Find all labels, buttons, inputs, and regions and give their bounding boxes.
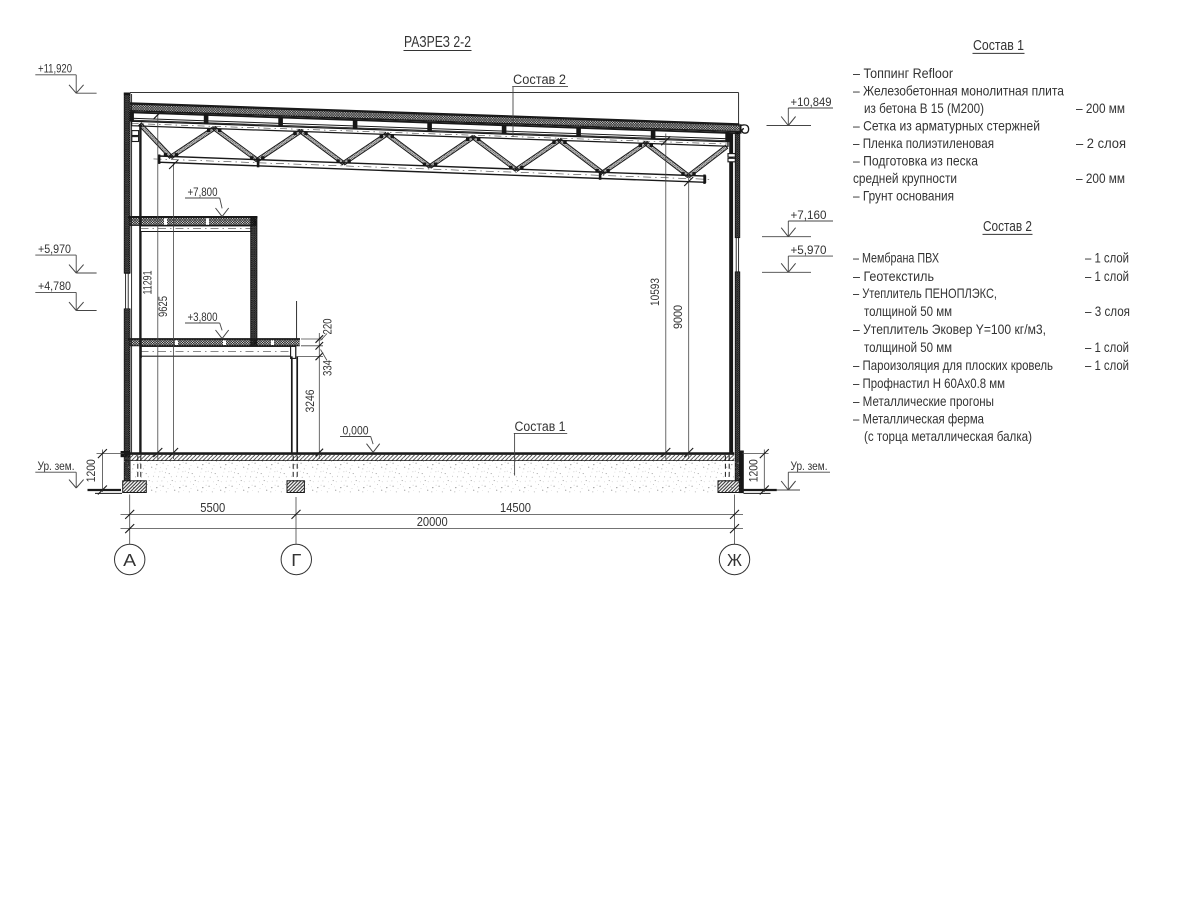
svg-text:9625: 9625 bbox=[156, 296, 170, 317]
svg-text:+7,160: +7,160 bbox=[791, 208, 827, 222]
svg-text:– Геотекстиль: – Геотекстиль bbox=[853, 268, 934, 284]
svg-text:1200: 1200 bbox=[749, 459, 761, 482]
svg-text:– 1 слой: – 1 слой bbox=[1085, 339, 1129, 355]
svg-text:+7,800: +7,800 bbox=[188, 185, 218, 199]
svg-text:220: 220 bbox=[323, 319, 335, 335]
svg-text:– 1 слой: – 1 слой bbox=[1085, 250, 1129, 266]
svg-text:Ур. зем.: Ур. зем. bbox=[791, 459, 828, 473]
svg-text:10593: 10593 bbox=[648, 278, 662, 306]
svg-text:– 1 слой: – 1 слой bbox=[1085, 268, 1129, 284]
svg-text:+5,970: +5,970 bbox=[38, 242, 71, 256]
svg-text:Ж: Ж bbox=[727, 550, 742, 570]
svg-text:0,000: 0,000 bbox=[343, 423, 369, 437]
svg-text:из бетона В 15 (М200): из бетона В 15 (М200) bbox=[864, 100, 984, 116]
svg-text:– Пленка полиэтиленовая: – Пленка полиэтиленовая bbox=[853, 135, 994, 151]
svg-text:– Сетка из арматурных стержней: – Сетка из арматурных стержней bbox=[853, 118, 1040, 134]
svg-text:Состав 2: Состав 2 bbox=[983, 218, 1032, 235]
svg-text:Состав 2: Состав 2 bbox=[513, 72, 566, 87]
svg-text:А: А bbox=[123, 550, 136, 570]
svg-text:11291: 11291 bbox=[140, 270, 154, 294]
svg-text:– Металлические прогоны: – Металлические прогоны bbox=[853, 393, 994, 409]
svg-text:(с торца металлическая балка): (с торца металлическая балка) bbox=[864, 428, 1032, 444]
svg-text:334: 334 bbox=[323, 359, 335, 376]
svg-text:+4,780: +4,780 bbox=[38, 279, 71, 293]
svg-text:+3,800: +3,800 bbox=[188, 310, 218, 324]
svg-text:Состав 1: Состав 1 bbox=[973, 37, 1024, 54]
svg-text:14500: 14500 bbox=[500, 500, 531, 515]
svg-text:3246: 3246 bbox=[303, 389, 317, 412]
svg-text:– 2 слоя: – 2 слоя bbox=[1076, 135, 1126, 151]
svg-text:9000: 9000 bbox=[671, 305, 685, 329]
svg-text:+5,970: +5,970 bbox=[791, 243, 827, 257]
svg-text:– Топпинг Refloor: – Топпинг Refloor bbox=[853, 65, 953, 81]
svg-text:– Железобетонная монолитная п: – Железобетонная монолитная плита bbox=[853, 83, 1064, 99]
svg-text:– Металлическая ферма: – Металлическая ферма bbox=[853, 411, 984, 427]
svg-text:– Мембрана ПВХ: – Мембрана ПВХ bbox=[853, 250, 940, 266]
svg-text:5500: 5500 bbox=[200, 500, 225, 515]
svg-text:– Грунт основания: – Грунт основания bbox=[853, 188, 954, 204]
svg-text:средней крупности: средней крупности bbox=[853, 170, 957, 186]
svg-text:– 1 слой: – 1 слой bbox=[1085, 357, 1129, 373]
svg-text:+11,920: +11,920 bbox=[38, 62, 72, 76]
svg-text:– Профнастил Н 60Ах0.8 мм: – Профнастил Н 60Ах0.8 мм bbox=[853, 375, 1005, 391]
svg-text:1200: 1200 bbox=[86, 459, 98, 482]
svg-text:+10,849: +10,849 bbox=[791, 95, 832, 109]
svg-text:– 200 мм: – 200 мм bbox=[1076, 100, 1125, 116]
svg-text:– Подготовка из песка: – Подготовка из песка bbox=[853, 153, 978, 169]
svg-text:РАЗРЕЗ 2-2: РАЗРЕЗ 2-2 bbox=[404, 34, 471, 51]
svg-text:Состав 1: Состав 1 bbox=[515, 419, 566, 434]
svg-text:– 3 слоя: – 3 слоя bbox=[1085, 303, 1130, 319]
svg-text:Г: Г bbox=[291, 550, 302, 570]
svg-text:20000: 20000 bbox=[417, 514, 448, 529]
svg-text:толщиной 50 мм: толщиной 50 мм bbox=[864, 339, 952, 355]
svg-text:толщиной 50 мм: толщиной 50 мм bbox=[864, 303, 952, 319]
svg-text:– Пароизоляция для плоских кро: – Пароизоляция для плоских кровель bbox=[853, 357, 1053, 373]
svg-text:– 200 мм: – 200 мм bbox=[1076, 170, 1125, 186]
svg-text:– Утеплитель Эковер Y=100 кг/м: – Утеплитель Эковер Y=100 кг/м3, bbox=[853, 321, 1046, 337]
svg-text:– Утеплитель ПЕНОПЛЭКС,: – Утеплитель ПЕНОПЛЭКС, bbox=[853, 285, 997, 301]
svg-text:Ур. зем.: Ур. зем. bbox=[38, 459, 75, 473]
